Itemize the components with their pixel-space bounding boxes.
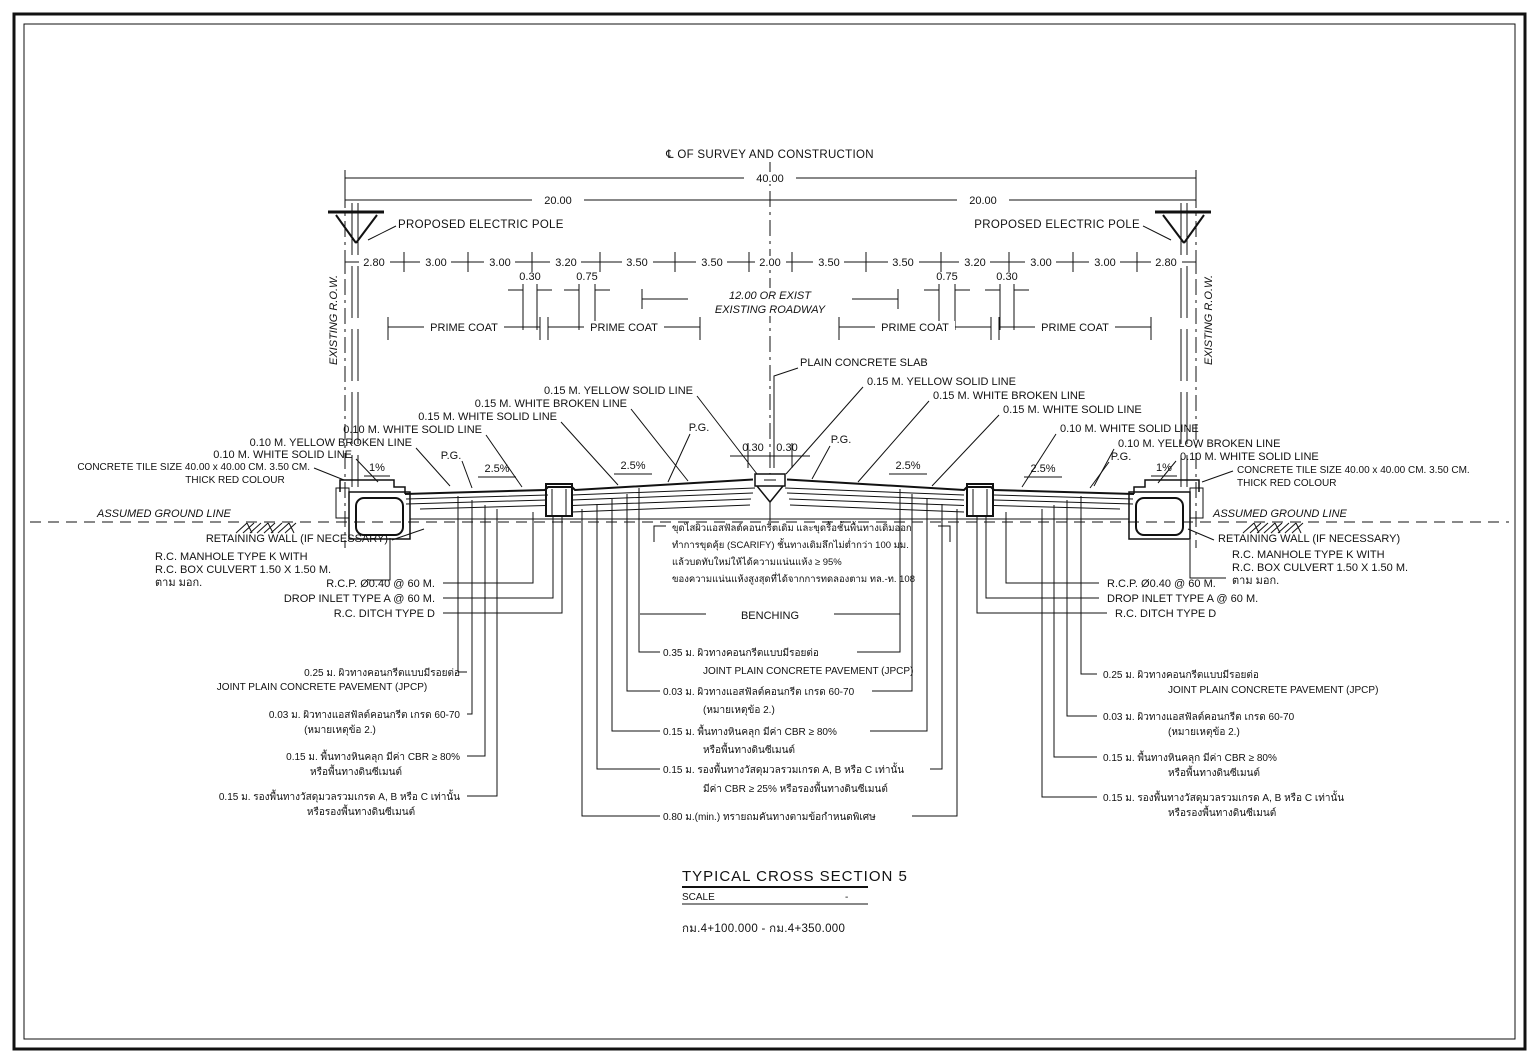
svg-text:ขุดไสผิวแอสฟัลต์คอนกรีตเดิม แล: ขุดไสผิวแอสฟัลต์คอนกรีตเดิม และขุดรื้อชั… [672,521,912,534]
retaining-wall-right: RETAINING WALL (IF NECESSARY) [1218,533,1400,545]
retaining-wall-left: RETAINING WALL (IF NECESSARY) [206,533,388,545]
svg-text:DROP INLET TYPE A @ 60 M.: DROP INLET TYPE A @ 60 M. [284,593,435,605]
svg-text:JOINT PLAIN CONCRETE PAVEMENT: JOINT PLAIN CONCRETE PAVEMENT (JPCP) [703,666,913,677]
benching-label: BENCHING [640,610,900,622]
roadway-name: EXISTING ROADWAY [715,304,826,316]
svg-text:0.30: 0.30 [519,271,540,283]
svg-text:CONCRETE TILE SIZE 40.00 x 40.: CONCRETE TILE SIZE 40.00 x 40.00 CM. 3.5… [1237,465,1470,476]
svg-text:P.G.: P.G. [1111,451,1132,463]
ground-hatch-right [1243,523,1303,533]
svg-text:R.C. BOX CULVERT 1.50 X 1.50 M: R.C. BOX CULVERT 1.50 X 1.50 M. [155,564,331,576]
svg-text:R.C.P. Ø0.40 @ 60 M.: R.C.P. Ø0.40 @ 60 M. [1107,578,1216,590]
manhole-label-right: R.C. MANHOLE TYPE K WITH R.C. BOX CULVER… [1190,540,1408,587]
plain-concrete-slab-label: PLAIN CONCRETE SLAB [800,357,928,369]
svg-text:3.50: 3.50 [626,257,647,269]
svg-text:0.10 M. WHITE SOLID LINE: 0.10 M. WHITE SOLID LINE [1180,451,1319,463]
dim-half-right: 20.00 [969,195,997,207]
marking-callouts-right: 0.15 M. YELLOW SOLID LINE 0.15 M. WHITE … [786,376,1470,489]
svg-text:3.00: 3.00 [425,257,446,269]
svg-text:0.15 M. WHITE SOLID LINE: 0.15 M. WHITE SOLID LINE [1003,404,1142,416]
svg-text:(หมายเหตุข้อ 2.): (หมายเหตุข้อ 2.) [703,704,775,716]
svg-text:0.25 ม. ผิวทางคอนกรีตแบบมีรอย: 0.25 ม. ผิวทางคอนกรีตแบบมีรอยต่อ [304,667,460,679]
centerline-title: ℄ OF SURVEY AND CONSTRUCTION [665,149,874,161]
svg-text:3.50: 3.50 [892,257,913,269]
svg-text:0.75: 0.75 [576,271,597,283]
dim-half-left: 20.00 [544,195,572,207]
svg-text:0.10 M. WHITE SOLID LINE: 0.10 M. WHITE SOLID LINE [213,449,352,461]
station-range: กม.4+100.000 - กม.4+350.000 [682,923,845,935]
svg-text:1%: 1% [1156,462,1172,474]
svg-text:0.35 ม. ผิวทางคอนกรีตแบบมีรอย: 0.35 ม. ผิวทางคอนกรีตแบบมีรอยต่อ [663,647,819,659]
svg-text:0.15 M. WHITE BROKEN LINE: 0.15 M. WHITE BROKEN LINE [475,398,627,410]
svg-text:JOINT PLAIN CONCRETE PAVEMENT: JOINT PLAIN CONCRETE PAVEMENT (JPCP) [217,682,427,693]
title-block: TYPICAL CROSS SECTION 5 SCALE - กม.4+100… [682,868,908,935]
row-label-left: EXISTING R.O.W. [328,275,340,365]
svg-text:ตาม มอก.: ตาม มอก. [155,577,202,589]
svg-text:0.75: 0.75 [936,271,957,283]
svg-text:0.15 ม. พื้นทางหินคลุก มีค่า: 0.15 ม. พื้นทางหินคลุก มีค่า CBR ≥ 80% [663,724,837,738]
svg-text:3.20: 3.20 [555,257,576,269]
cross-section-drawing: ℄ OF SURVEY AND CONSTRUCTION 40.00 20.00… [0,0,1539,1063]
svg-text:0.15 ม. รองพื้นทางวัสดุมวลรวม: 0.15 ม. รองพื้นทางวัสดุมวลรวมเกรด A, B ห… [663,762,904,776]
svg-text:2.5%: 2.5% [484,463,509,475]
svg-text:2.5%: 2.5% [895,460,920,472]
svg-text:0.03 ม. ผิวทางแอสฟัลต์คอนกรีต: 0.03 ม. ผิวทางแอสฟัลต์คอนกรีต เกรด 60-70 [1103,711,1295,723]
svg-text:0.15 M. YELLOW SOLID LINE: 0.15 M. YELLOW SOLID LINE [867,376,1016,388]
svg-text:PRIME COAT: PRIME COAT [590,322,658,334]
svg-text:หรือรองพื้นทางดินซีเมนต์: หรือรองพื้นทางดินซีเมนต์ [307,804,415,818]
svg-text:0.30: 0.30 [776,442,797,454]
svg-text:2.00: 2.00 [759,257,780,269]
drop-inlet-right [967,484,993,516]
svg-text:ทำการขุดคุ้ย (SCARIFY) ชั้นทาง: ทำการขุดคุ้ย (SCARIFY) ชั้นทางเดิมลึกไม่… [672,538,909,551]
svg-text:0.25 ม. ผิวทางคอนกรีตแบบมีรอย: 0.25 ม. ผิวทางคอนกรีตแบบมีรอยต่อ [1103,669,1259,681]
svg-text:R.C. DITCH TYPE D: R.C. DITCH TYPE D [334,608,435,620]
dim-total: 40.00 [756,173,784,185]
svg-text:P.G.: P.G. [441,450,462,462]
scale-value: - [845,892,848,903]
svg-text:PRIME COAT: PRIME COAT [1041,322,1109,334]
svg-text:0.15 M. WHITE SOLID LINE: 0.15 M. WHITE SOLID LINE [418,411,557,423]
assumed-ground-right: ASSUMED GROUND LINE [1212,508,1348,520]
svg-text:PRIME COAT: PRIME COAT [430,322,498,334]
svg-text:DROP INLET TYPE A @ 60 M.: DROP INLET TYPE A @ 60 M. [1107,593,1258,605]
svg-text:0.15 ม. รองพื้นทางวัสดุมวลรวม: 0.15 ม. รองพื้นทางวัสดุมวลรวมเกรด A, B ห… [219,789,460,803]
svg-text:0.03 ม. ผิวทางแอสฟัลต์คอนกรีต: 0.03 ม. ผิวทางแอสฟัลต์คอนกรีต เกรด 60-70 [269,709,461,721]
svg-text:R.C. DITCH TYPE D: R.C. DITCH TYPE D [1115,608,1216,620]
svg-text:R.C. BOX CULVERT 1.50 X 1.50 M: R.C. BOX CULVERT 1.50 X 1.50 M. [1232,562,1408,574]
svg-text:0.03 ม. ผิวทางแอสฟัลต์คอนกรีต: 0.03 ม. ผิวทางแอสฟัลต์คอนกรีต เกรด 60-70 [663,686,855,698]
svg-text:0.15 ม. พื้นทางหินคลุก มีค่า: 0.15 ม. พื้นทางหินคลุก มีค่า CBR ≥ 80% [286,749,460,763]
drop-inlet-left [546,484,572,516]
svg-text:2.5%: 2.5% [620,460,645,472]
svg-text:0.30: 0.30 [996,271,1017,283]
svg-text:PRIME COAT: PRIME COAT [881,322,949,334]
svg-text:0.15 M. YELLOW SOLID LINE: 0.15 M. YELLOW SOLID LINE [544,385,693,397]
svg-text:0.15 M. WHITE BROKEN LINE: 0.15 M. WHITE BROKEN LINE [933,390,1085,402]
svg-text:แล้วบดทับใหม่ให้ได้ความแน่นแห้: แล้วบดทับใหม่ให้ได้ความแน่นแห้ง ≥ 95% [672,556,842,568]
svg-text:ตาม มอก.: ตาม มอก. [1232,575,1279,587]
svg-text:ของความแน่นแห้งสูงสุดที่ได้จาก: ของความแน่นแห้งสูงสุดที่ได้จากการทดลองตา… [672,572,915,585]
svg-text:1%: 1% [369,462,385,474]
svg-text:THICK RED COLOUR: THICK RED COLOUR [185,475,284,486]
left-curb-culvert [336,480,410,539]
svg-text:(หมายเหตุข้อ 2.): (หมายเหตุข้อ 2.) [304,724,376,736]
svg-text:3.00: 3.00 [1030,257,1051,269]
svg-text:2.5%: 2.5% [1030,463,1055,475]
svg-text:3.50: 3.50 [701,257,722,269]
svg-text:0.15 ม. พื้นทางหินคลุก มีค่า: 0.15 ม. พื้นทางหินคลุก มีค่า CBR ≥ 80% [1103,750,1277,764]
svg-text:0.10 M. YELLOW BROKEN LINE: 0.10 M. YELLOW BROKEN LINE [1118,438,1280,450]
svg-text:0.80 ม.(min.) ทรายถมคันทางตาม: 0.80 ม.(min.) ทรายถมคันทางตามข้อกำหนดพิเ… [663,811,876,823]
svg-text:มีค่า CBR ≥ 25% หรือรองพื้นทาง: มีค่า CBR ≥ 25% หรือรองพื้นทางดินซีเมนต์ [703,781,888,795]
svg-text:0.10 M. WHITE SOLID LINE: 0.10 M. WHITE SOLID LINE [343,424,482,436]
svg-text:P.G.: P.G. [689,422,710,434]
svg-text:หรือพื้นทางดินซีเมนต์: หรือพื้นทางดินซีเมนต์ [1168,765,1260,779]
drawing-sheet: ℄ OF SURVEY AND CONSTRUCTION 40.00 20.00… [0,0,1539,1063]
svg-text:JOINT PLAIN CONCRETE PAVEMENT: JOINT PLAIN CONCRETE PAVEMENT (JPCP) [1168,685,1378,696]
drawing-title: TYPICAL CROSS SECTION 5 [682,868,908,885]
svg-text:(หมายเหตุข้อ 2.): (หมายเหตุข้อ 2.) [1168,726,1240,738]
svg-text:R.C. MANHOLE TYPE K WITH: R.C. MANHOLE TYPE K WITH [1232,549,1385,561]
svg-text:THICK RED COLOUR: THICK RED COLOUR [1237,478,1336,489]
assumed-ground-left: ASSUMED GROUND LINE [96,508,232,520]
roadway-width: 12.00 OR EXIST [729,290,812,302]
marking-callouts-left: 0.15 M. YELLOW SOLID LINE 0.15 M. WHITE … [77,385,757,487]
svg-text:P.G.: P.G. [831,434,852,446]
scarify-note: ขุดไสผิวแอสฟัลต์คอนกรีตเดิม และขุดรื้อชั… [654,521,950,585]
svg-text:หรือพื้นทางดินซีเมนต์: หรือพื้นทางดินซีเมนต์ [703,742,795,756]
svg-text:3.00: 3.00 [489,257,510,269]
row-label-right: EXISTING R.O.W. [1203,275,1215,365]
ground-hatch-left [236,523,296,533]
svg-text:3.00: 3.00 [1094,257,1115,269]
svg-text:R.C.P. Ø0.40 @ 60 M.: R.C.P. Ø0.40 @ 60 M. [326,578,435,590]
drainage-labels-right: R.C.P. Ø0.40 @ 60 M. DROP INLET TYPE A @… [977,512,1258,620]
svg-text:R.C. MANHOLE TYPE K WITH: R.C. MANHOLE TYPE K WITH [155,551,308,563]
svg-text:2.80: 2.80 [1155,257,1176,269]
svg-text:0.10 M. YELLOW BROKEN LINE: 0.10 M. YELLOW BROKEN LINE [250,437,412,449]
svg-text:หรือรองพื้นทางดินซีเมนต์: หรือรองพื้นทางดินซีเมนต์ [1168,805,1276,819]
svg-text:2.80: 2.80 [363,257,384,269]
svg-text:0.15 ม. รองพื้นทางวัสดุมวลรวม: 0.15 ม. รองพื้นทางวัสดุมวลรวมเกรด A, B ห… [1103,790,1344,804]
pole-label-right: PROPOSED ELECTRIC POLE [974,219,1140,231]
layer-list-center: 0.35 ม. ผิวทางคอนกรีตแบบมีรอยต่อ JOINT P… [582,488,957,823]
svg-text:0.10 M. WHITE SOLID LINE: 0.10 M. WHITE SOLID LINE [1060,423,1199,435]
svg-text:3.20: 3.20 [964,257,985,269]
scale-label: SCALE [682,892,715,903]
svg-text:3.50: 3.50 [818,257,839,269]
roadway-dimension: 12.00 OR EXIST EXISTING ROADWAY [642,288,898,316]
pole-label-left: PROPOSED ELECTRIC POLE [398,219,564,231]
svg-text:BENCHING: BENCHING [741,610,799,622]
svg-text:0.30: 0.30 [742,442,763,454]
svg-text:CONCRETE TILE SIZE 40.00 x 40.: CONCRETE TILE SIZE 40.00 x 40.00 CM. 3.5… [77,462,310,473]
svg-text:หรือพื้นทางดินซีเมนต์: หรือพื้นทางดินซีเมนต์ [310,764,402,778]
